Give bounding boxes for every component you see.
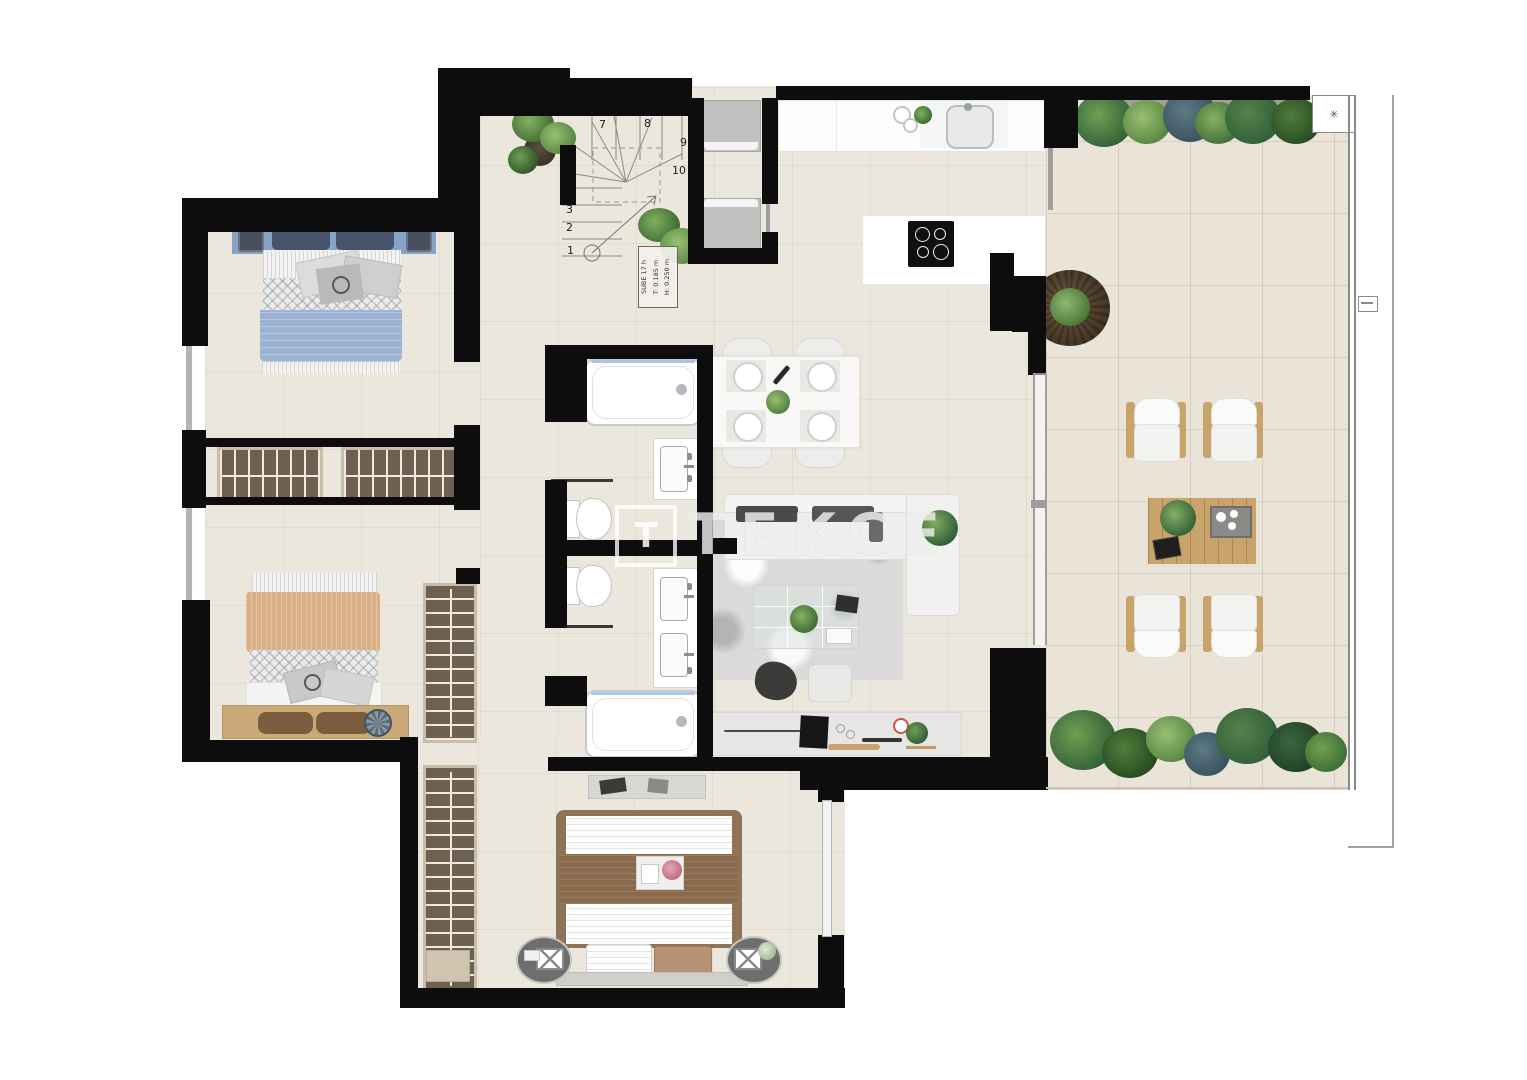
wardrobe-rail [222, 475, 318, 477]
plant-icon [906, 722, 928, 744]
plant-icon [790, 605, 818, 633]
tree-foliage-icon [1050, 288, 1090, 326]
wall [456, 568, 480, 584]
faucet-icon [684, 465, 694, 468]
plant-icon [508, 146, 538, 174]
toilet-icon [566, 565, 612, 605]
burner [917, 246, 929, 258]
stair-step-number: 7 [599, 118, 606, 131]
tray-cup [1216, 512, 1226, 522]
toilet-bowl [576, 498, 612, 540]
plate [807, 362, 837, 392]
wall [990, 648, 1046, 758]
wall [182, 430, 206, 508]
wall [560, 78, 692, 116]
glass-door-mullion [1031, 500, 1045, 508]
tv-icon [799, 715, 829, 748]
plant-icon [914, 106, 932, 124]
console-wood-tray [828, 744, 880, 750]
coffee-table-book [835, 595, 859, 614]
railing-handle [1358, 296, 1378, 312]
appliance-front [704, 199, 758, 207]
counter-divider [836, 100, 837, 150]
chair-seat [1134, 424, 1180, 462]
master-bed-sheet-bottom [566, 904, 732, 944]
coffee-table-tray [826, 628, 852, 644]
faucet-icon [687, 583, 692, 590]
terrace-armchair [1126, 398, 1186, 462]
pillow-ring-motif [304, 674, 321, 691]
chair-back [1211, 630, 1257, 658]
terrace-edge-line [1046, 787, 1348, 789]
wardrobe [217, 447, 323, 503]
toilet-icon [566, 498, 612, 538]
chair-seat [1211, 594, 1257, 632]
wardrobe-rail [346, 475, 459, 477]
wall [182, 198, 478, 232]
kitchen-sink-icon [946, 105, 994, 149]
faucet-icon [964, 103, 972, 111]
kitchen-island [862, 215, 1046, 285]
wardrobe-rail [450, 589, 452, 737]
master-headboard [556, 972, 748, 986]
railing-line [1348, 95, 1350, 790]
plate [807, 412, 837, 442]
stair-label-line: SUBE 17 h [639, 248, 651, 306]
plate [733, 362, 763, 392]
faucet-icon [687, 667, 692, 674]
wall [182, 600, 210, 762]
wall [545, 676, 587, 706]
bed2-blanket-tan [246, 592, 380, 652]
wall [990, 253, 1014, 331]
chair-back [1211, 398, 1257, 426]
exterior-patch-kitchen-top [693, 68, 1046, 86]
wall [762, 98, 778, 204]
appliance-front [704, 142, 758, 150]
console-handle [724, 730, 812, 732]
wall [776, 86, 1076, 100]
stair-label-line: T: 0.185 m [651, 248, 663, 306]
bench-item-grey [647, 778, 668, 794]
stair-label-text: SUBE 17 h T: 0.185 m H: 0.250 m [639, 248, 677, 306]
railing-handle-line [1361, 302, 1373, 304]
wall [182, 198, 208, 346]
terrace-armchair [1126, 592, 1186, 656]
nightstand-frame [536, 948, 564, 970]
chair-back [1134, 630, 1180, 658]
stair-step-number: 10 [672, 164, 686, 177]
wall [454, 425, 480, 510]
cooktop-icon [908, 221, 954, 267]
centerpiece-plant-icon [766, 390, 790, 414]
stair-label-line: H: 0.250 m [662, 248, 674, 306]
door-leaf [822, 800, 832, 937]
wall [818, 772, 844, 802]
faucet-icon [684, 653, 694, 656]
chair-seat [1134, 594, 1180, 632]
bed1-fringe [262, 362, 400, 374]
window [186, 508, 192, 600]
bed2-cushion-brown [258, 712, 313, 734]
tray-cup [1230, 510, 1238, 518]
watermark-text: TEKCE [688, 502, 953, 568]
wall [400, 988, 845, 1008]
stair-step-number: 2 [566, 221, 573, 234]
terrace-armchair [1203, 398, 1263, 462]
fan-icon [364, 709, 392, 737]
stair-step-number: 1 [567, 244, 574, 257]
wall [480, 68, 570, 116]
wall [560, 145, 576, 205]
plate [733, 412, 763, 442]
watermark-logo: T [615, 505, 677, 567]
stair-label-box: SUBE 17 h T: 0.185 m H: 0.250 m [638, 246, 678, 308]
wall [205, 497, 457, 505]
toilet-bowl [576, 565, 612, 607]
nightstand-lamp [524, 950, 540, 961]
console-rings [846, 730, 855, 739]
faucet-icon [684, 595, 694, 598]
wall [454, 232, 480, 362]
console-rings [836, 724, 845, 733]
burner [915, 227, 930, 242]
bathtub-icon [585, 358, 701, 426]
wall [1044, 100, 1078, 148]
bed2-cushion-brown [316, 712, 371, 734]
bed1-blanket-blue [260, 310, 402, 362]
plant-icon [1216, 708, 1278, 764]
wardrobe-drawers [426, 950, 470, 982]
bathtub-icon [585, 690, 701, 758]
wall [400, 737, 418, 1008]
console-remote [862, 738, 902, 742]
floor-terrace [1046, 95, 1348, 790]
bathroom-vanity [653, 438, 699, 500]
boundary-line [1392, 95, 1394, 848]
tub-edge [591, 360, 695, 363]
boundary-line [1348, 846, 1394, 848]
stair-step-number: 9 [680, 136, 687, 149]
wall [438, 68, 480, 232]
bed2-sheet-top [252, 572, 377, 594]
sliding-door [766, 204, 770, 232]
burner [934, 228, 946, 240]
window [186, 346, 192, 430]
console-pencil [906, 746, 936, 749]
sink-icon [660, 577, 688, 621]
chair-seat [1211, 424, 1257, 462]
master-bed-sheet-top [566, 816, 732, 854]
wall [548, 757, 803, 771]
floor-plan-canvas: 1 2 3 4 5 6 7 8 9 10 SUBE 17 h T: 0.185 … [0, 0, 1527, 1080]
tray-book [641, 864, 659, 884]
faucet-icon [687, 475, 692, 482]
flowers-icon [662, 860, 682, 880]
stair-step-number: 8 [644, 117, 651, 130]
tub-drain [676, 384, 687, 395]
wall [688, 248, 778, 264]
wall [205, 438, 457, 447]
burner [933, 244, 949, 260]
sliding-door [1048, 148, 1053, 210]
wall [1076, 86, 1310, 100]
faucet-icon [687, 453, 692, 460]
wardrobe [423, 583, 477, 743]
wall [545, 348, 587, 422]
sliding-glass-door [1033, 373, 1047, 645]
ottoman-white [808, 664, 852, 702]
plant-icon [1160, 500, 1196, 536]
wall [182, 740, 418, 762]
sink-icon [660, 446, 688, 492]
wall [1012, 276, 1046, 332]
plant-icon [758, 942, 776, 960]
tub-drain [676, 716, 687, 727]
plant-icon [1305, 732, 1347, 772]
wall [688, 98, 704, 248]
tray-cup [1228, 522, 1236, 530]
terrace-armchair [1203, 592, 1263, 656]
wall [1028, 330, 1046, 375]
tub-edge [591, 692, 695, 695]
chair-back [1134, 398, 1180, 426]
pillow-ring-motif [332, 276, 350, 294]
railing-line [1354, 95, 1356, 790]
wardrobe [341, 447, 465, 503]
wall [818, 935, 844, 990]
bathroom-double-vanity [653, 568, 699, 688]
